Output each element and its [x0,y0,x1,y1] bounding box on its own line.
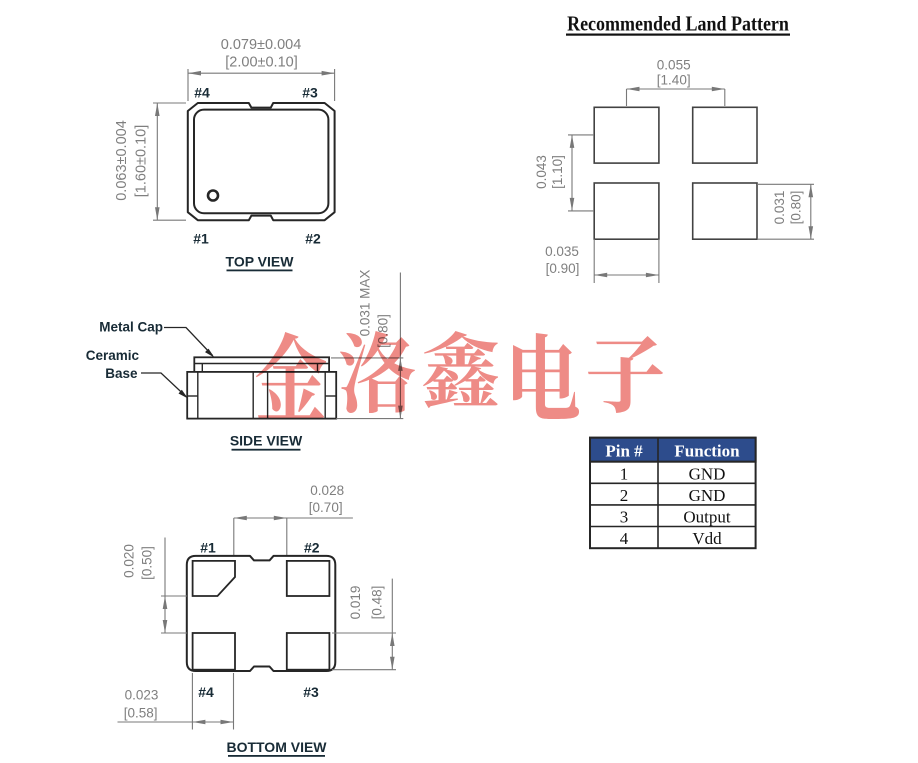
svg-text:#4: #4 [198,684,214,700]
svg-text:0.055: 0.055 [657,58,691,73]
svg-text:[0.80]: [0.80] [789,191,804,225]
svg-text:[1.40]: [1.40] [657,73,691,88]
svg-text:3: 3 [620,508,629,527]
svg-text:0.035: 0.035 [545,244,579,259]
svg-text:[0.70]: [0.70] [309,500,343,515]
svg-text:0.079±0.004: 0.079±0.004 [221,37,302,53]
svg-text:TOP VIEW: TOP VIEW [226,254,295,270]
svg-text:#3: #3 [302,85,318,101]
svg-text:Function: Function [674,442,740,461]
svg-text:4: 4 [620,529,629,548]
svg-text:GND: GND [689,465,726,484]
svg-text:Pin #: Pin # [605,442,643,461]
svg-text:[0.58]: [0.58] [124,706,158,721]
svg-text:[0.48]: [0.48] [370,586,385,620]
svg-text:#2: #2 [305,231,321,247]
svg-text:[0.50]: [0.50] [140,546,155,580]
svg-text:SIDE VIEW: SIDE VIEW [230,433,303,449]
svg-text:0.031: 0.031 [772,191,787,225]
svg-text:[1.60±0.10]: [1.60±0.10] [134,125,150,197]
svg-text:BOTTOM VIEW: BOTTOM VIEW [226,739,327,755]
svg-text:#1: #1 [193,231,209,247]
svg-text:[2.00±0.10]: [2.00±0.10] [225,55,297,71]
svg-text:Metal Cap: Metal Cap [99,320,163,335]
svg-text:#2: #2 [304,540,320,556]
svg-text:0.031 MAX: 0.031 MAX [358,270,373,337]
svg-text:#3: #3 [303,684,319,700]
svg-text:Base: Base [105,366,138,381]
svg-text:0.020: 0.020 [122,544,137,578]
svg-text:0.023: 0.023 [125,688,159,703]
svg-text:0.063±0.004: 0.063±0.004 [114,120,130,201]
svg-text:[0.90]: [0.90] [546,261,580,276]
svg-text:0.019: 0.019 [348,586,363,620]
svg-text:#1: #1 [200,540,216,556]
svg-text:[1.10]: [1.10] [550,155,565,189]
svg-text:Vdd: Vdd [692,529,722,548]
svg-text:Output: Output [683,508,731,527]
svg-text:0.028: 0.028 [310,483,344,498]
svg-text:#4: #4 [194,85,210,101]
svg-text:1: 1 [620,465,629,484]
svg-text:2: 2 [620,486,629,505]
svg-text:0.043: 0.043 [534,155,549,189]
svg-text:Recommended Land Pattern: Recommended Land Pattern [567,13,789,36]
svg-text:Ceramic: Ceramic [86,348,140,363]
svg-text:GND: GND [689,486,726,505]
